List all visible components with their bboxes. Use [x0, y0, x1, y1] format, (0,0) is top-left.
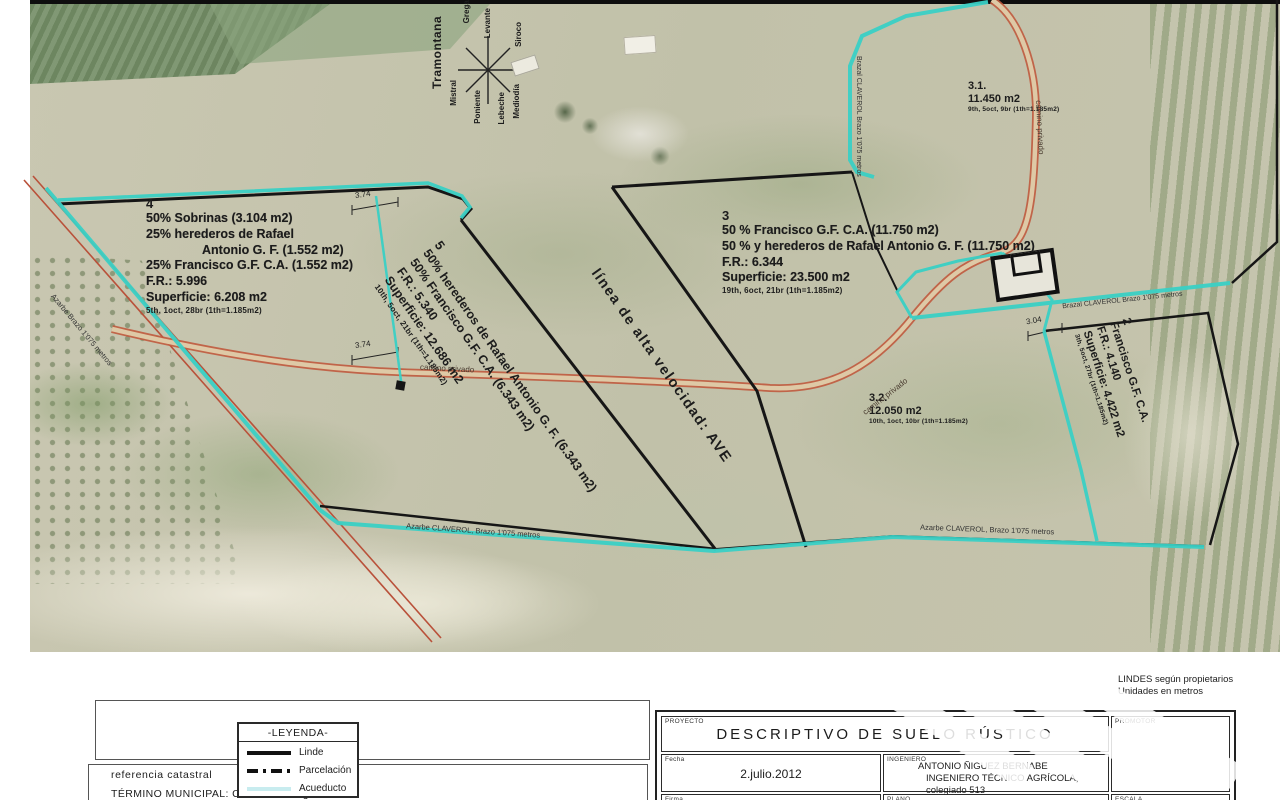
- acueducto-swatch: [247, 787, 291, 791]
- linde-swatch: [247, 751, 291, 755]
- owner-line: 25% Francisco G.F. C.A. (1.552 m2): [146, 258, 436, 274]
- wind-label-gregal: Gregal: [462, 0, 471, 23]
- area-line: 12.050 m2: [869, 405, 968, 418]
- parcel-number: 4: [146, 196, 436, 211]
- date-value: 2.julio.2012: [662, 767, 880, 781]
- cell-escala: ESCALA 1/1.200: [1111, 794, 1230, 800]
- wind-label-tramontana: Tramontana: [430, 16, 444, 89]
- note-lindes: LINDES según propietarios: [1118, 674, 1233, 686]
- field-label: PROMOTOR: [1115, 718, 1156, 725]
- legend-item-acueducto: Acueducto: [239, 778, 357, 796]
- parcel-number: 3.1.: [968, 80, 1059, 93]
- legend-item-linde: Linde: [239, 742, 357, 760]
- wind-label-mediodia: Mediodía: [512, 84, 521, 119]
- cadastral-plan-page: Tramontana Gregal Levante Siroco Mistral…: [0, 0, 1280, 800]
- parcel-3-annotation: 3 50 % Francisco G.F. C.A. (11.750 m2) 5…: [722, 208, 1122, 295]
- brazal-vertical-label: Brazal CLAVEROL Brazo 1'075 metros: [855, 56, 862, 177]
- wind-label-lebeche: Lebeche: [497, 92, 506, 124]
- shed: [623, 35, 656, 55]
- field-label: Firma: [665, 796, 683, 800]
- cell-proyecto: PROYECTO DESCRIPTIVO DE SUELO RÚSTICO: [661, 716, 1109, 752]
- registry-line: F.R.: 6.344: [722, 255, 1122, 271]
- parcel-number: 3: [722, 208, 1122, 223]
- cell-plano: PLANO REPRESENTACION GENERAL: [883, 794, 1109, 800]
- termino-municipal-label: TÉRMINO MUNICIPAL: Callosa de Segura: [111, 788, 647, 800]
- tahullas-line: 10th, 1oct, 10br (1th=1.185m2): [869, 418, 968, 425]
- field-label: ESCALA: [1115, 796, 1142, 800]
- wind-label-siroco: Siroco: [514, 22, 523, 47]
- parcel-3-1-annotation: 3.1. 11.450 m2 9th, 5oct, 9br (1th=1.185…: [968, 80, 1059, 113]
- tahullas-line: 19th, 6oct, 21br (1th=1.185m2): [722, 286, 1122, 295]
- cell-firma: Firma: [661, 794, 881, 800]
- engineer-name: ANTONIO ÑIGUEZ BERNABE: [918, 761, 1108, 773]
- project-title: DESCRIPTIVO DE SUELO RÚSTICO: [662, 726, 1108, 743]
- referencia-catastral-label: referencia catastral: [111, 769, 647, 781]
- cell-fecha: Fecha 2.julio.2012: [661, 754, 881, 792]
- cell-promotor: PROMOTOR: [1111, 716, 1230, 792]
- field-label: PLANO: [887, 796, 911, 800]
- note-unidades: Unidades en metros: [1118, 686, 1233, 698]
- reference-box-empty: [95, 700, 650, 760]
- small-structure: [395, 380, 405, 390]
- field-label: INGENIERO: [887, 756, 926, 763]
- field-label: PROYECTO: [665, 718, 704, 725]
- wind-label-levante: Levante: [483, 8, 492, 38]
- owner-line: 50 % Francisco G.F. C.A. (11.750 m2): [722, 223, 1122, 239]
- legend-box: -LEYENDA- Linde Parcelación Acueducto: [237, 722, 359, 798]
- wind-label-poniente: Poniente: [473, 90, 482, 124]
- area-line: 11.450 m2: [968, 93, 1059, 106]
- owner-line: 25% herederos de Rafael: [146, 227, 436, 243]
- legend-title: -LEYENDA-: [239, 724, 357, 742]
- wind-label-mistral: Mistral: [449, 80, 458, 106]
- owner-line: 50% Sobrinas (3.104 m2): [146, 211, 436, 227]
- title-block: PROYECTO DESCRIPTIVO DE SUELO RÚSTICO Fe…: [655, 710, 1236, 800]
- owner-line: Antonio G. F. (1.552 m2): [146, 243, 436, 259]
- cell-ingeniero: INGENIERO ANTONIO ÑIGUEZ BERNABE INGENIE…: [883, 754, 1109, 792]
- map-notes: LINDES según propietarios Unidades en me…: [1118, 674, 1233, 697]
- parcelacion-swatch: [247, 769, 291, 773]
- legend-label: Linde: [299, 747, 323, 758]
- legend-label: Parcelación: [299, 765, 351, 776]
- legend-label: Acueducto: [299, 783, 346, 794]
- legend-item-parcelacion: Parcelación: [239, 760, 357, 778]
- cadastral-reference-box: referencia catastral TÉRMINO MUNICIPAL: …: [88, 764, 648, 800]
- field-label: Fecha: [665, 756, 685, 763]
- area-line: Superficie: 23.500 m2: [722, 270, 1122, 286]
- owner-line: 50 % y herederos de Rafael Antonio G. F.…: [722, 239, 1122, 255]
- tahullas-line: 9th, 5oct, 9br (1th=1.185m2): [968, 106, 1059, 113]
